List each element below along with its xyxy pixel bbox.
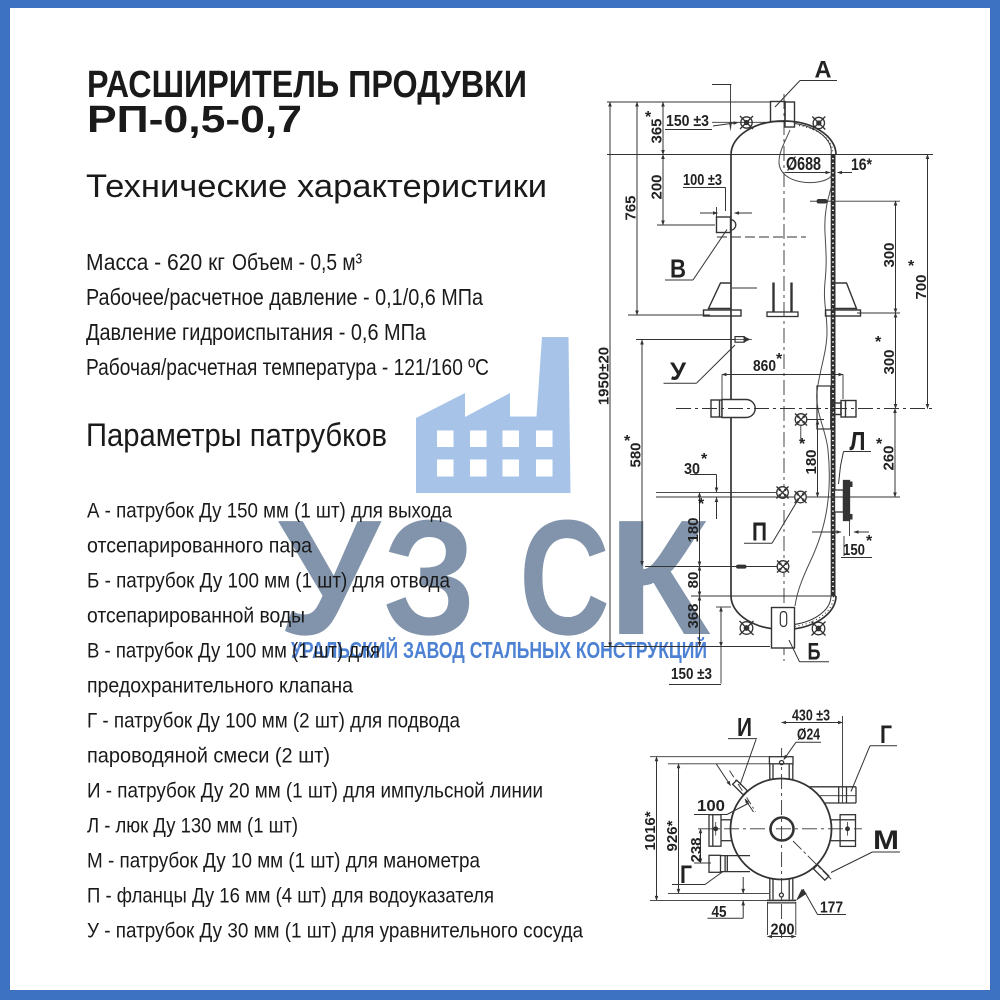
svg-text:860: 860 (753, 358, 776, 375)
svg-text:*: * (701, 451, 708, 468)
svg-text:200: 200 (771, 922, 795, 939)
svg-text:В: В (670, 254, 686, 284)
svg-text:*: * (876, 436, 883, 453)
svg-text:300: 300 (881, 349, 898, 374)
svg-text:300: 300 (881, 242, 898, 267)
svg-text:П: П (752, 519, 767, 547)
svg-text:РП-0,5-0,7: РП-0,5-0,7 (87, 99, 302, 141)
svg-text:368: 368 (685, 603, 702, 628)
svg-text:Б - патрубок Ду 100 мм (1 шт): Б - патрубок Ду 100 мм (1 шт) для отвода (87, 569, 450, 593)
svg-text:М: М (873, 825, 899, 855)
svg-text:238: 238 (688, 837, 705, 862)
svg-text:А - патрубок Ду 150 мм (1 шт): А - патрубок Ду 150 мм (1 шт) для выхода (87, 499, 452, 523)
svg-text:16*: 16* (851, 155, 872, 174)
svg-text:Г: Г (880, 721, 892, 749)
svg-text:*: * (698, 496, 705, 513)
svg-text:Рабочая/расчетная температура: Рабочая/расчетная температура - 121/160 … (86, 354, 489, 380)
svg-text:177: 177 (820, 900, 843, 917)
svg-text:Давление гидроиспытания - 0,6: Давление гидроиспытания - 0,6 МПа (86, 319, 426, 345)
svg-text:430 ±3: 430 ±3 (792, 708, 830, 725)
svg-text:*: * (799, 436, 806, 453)
svg-text:Рабочее/расчетное давление - 0: Рабочее/расчетное давление - 0,1/0,6 МПа (86, 284, 483, 310)
svg-text:*: * (875, 334, 882, 351)
svg-text:П - фланцы Ду 16 мм (4 шт) для: П - фланцы Ду 16 мм (4 шт) для водоуказа… (87, 884, 494, 908)
svg-text:1950±20: 1950±20 (596, 347, 613, 405)
svg-text:180: 180 (803, 449, 820, 474)
svg-text:700: 700 (913, 274, 930, 299)
svg-text:Ø688: Ø688 (786, 154, 821, 174)
svg-text:Ø24: Ø24 (797, 727, 820, 744)
svg-text:926*: 926* (664, 820, 681, 851)
svg-text:Параметры патрубков: Параметры патрубков (86, 417, 387, 453)
svg-text:предохранительного клапана: предохранительного клапана (87, 674, 353, 698)
svg-text:У: У (670, 358, 686, 386)
svg-text:*: * (624, 433, 631, 450)
svg-text:отсепарированной воды: отсепарированной воды (87, 604, 305, 628)
svg-text:Масса - 620 кг: Масса - 620 кг (86, 249, 225, 275)
svg-text:Л - люк Ду 130 мм (1 шт): Л - люк Ду 130 мм (1 шт) (87, 814, 298, 838)
svg-text:А: А (815, 57, 832, 84)
svg-text:В - патрубок Ду 100 мм (1 шт): В - патрубок Ду 100 мм (1 шт) для (87, 639, 380, 663)
svg-text:У - патрубок Ду 30 мм (1 шт) д: У - патрубок Ду 30 мм (1 шт) для уравнит… (87, 919, 583, 943)
svg-text:пароводяной смеси (2 шт): пароводяной смеси (2 шт) (87, 744, 330, 768)
svg-text:И: И (737, 712, 752, 742)
svg-text:200: 200 (649, 174, 666, 199)
svg-text:100: 100 (697, 798, 725, 815)
svg-text:И - патрубок Ду 20 мм (1 шт) д: И - патрубок Ду 20 мм (1 шт) для импульс… (87, 779, 543, 803)
svg-text:Объем - 0,5 м³: Объем - 0,5 м³ (232, 249, 362, 275)
svg-text:1016*: 1016* (642, 811, 659, 850)
svg-text:*: * (776, 351, 783, 368)
svg-text:отсепарированного пара: отсепарированного пара (87, 534, 312, 558)
svg-text:100 ±3: 100 ±3 (683, 172, 722, 189)
svg-text:*: * (866, 533, 873, 550)
svg-text:М - патрубок Ду 10 мм (1 шт) д: М - патрубок Ду 10 мм (1 шт) для маномет… (87, 849, 480, 873)
svg-text:*: * (908, 258, 915, 275)
svg-text:260: 260 (881, 445, 898, 470)
svg-text:*: * (645, 109, 652, 126)
svg-text:Технические характеристики: Технические характеристики (86, 168, 547, 204)
svg-text:150 ±3: 150 ±3 (666, 113, 709, 130)
svg-text:150 ±3: 150 ±3 (671, 666, 712, 683)
svg-text:180: 180 (685, 517, 702, 542)
svg-text:150: 150 (843, 542, 865, 559)
svg-text:30: 30 (684, 461, 700, 478)
svg-text:765: 765 (623, 195, 640, 220)
svg-text:80: 80 (685, 572, 702, 589)
svg-text:Г - патрубок Ду 100 мм (2 шт): Г - патрубок Ду 100 мм (2 шт) для подвод… (87, 709, 460, 733)
